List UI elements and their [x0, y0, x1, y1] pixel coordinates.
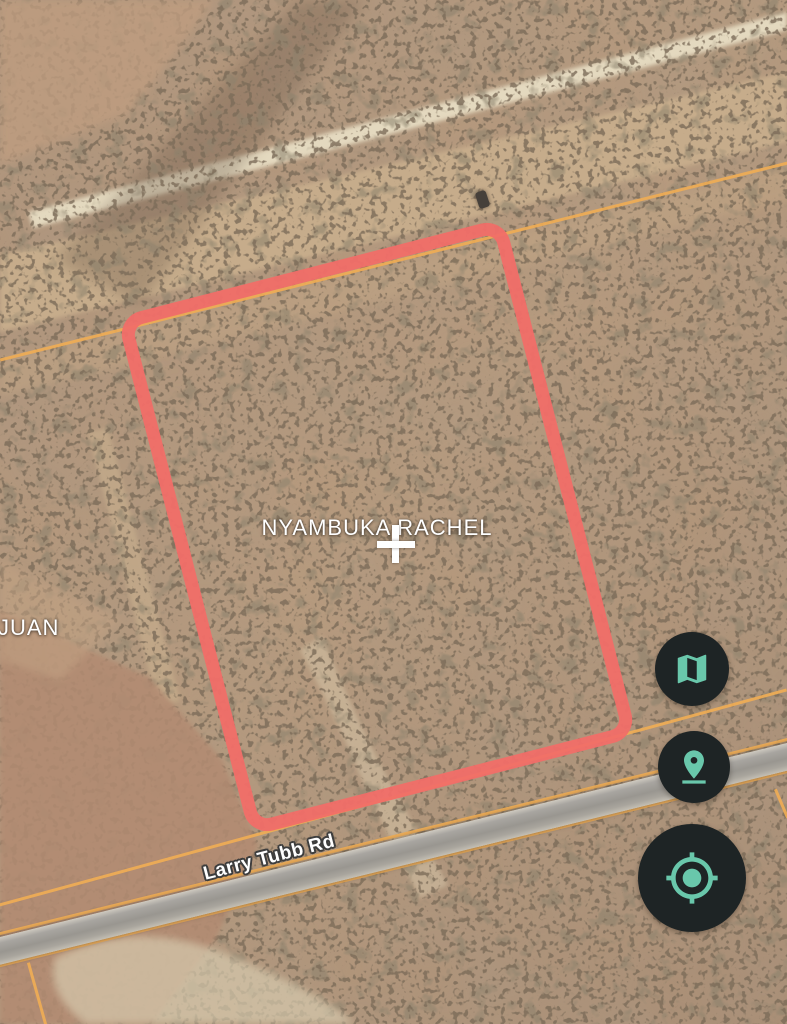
map-icon-glyph	[678, 655, 707, 684]
parcel-pin-button[interactable]	[658, 731, 730, 803]
neighbor-parcel-label: JUAN	[0, 615, 59, 641]
map-viewport[interactable]: NYAMBUKA RACHEL JUAN Larry Tubb Rd	[0, 0, 787, 1024]
map-icon	[673, 650, 711, 688]
my-location-icon-glyph	[666, 852, 717, 903]
map-type-button[interactable]	[655, 632, 729, 706]
my-location-icon	[664, 850, 720, 906]
pin-drop-icon	[674, 747, 714, 787]
parcel-center-marker-icon	[377, 541, 415, 548]
pin-drop-icon-glyph	[682, 750, 705, 783]
gps-locate-button[interactable]	[638, 824, 746, 932]
parcel-owner-label: NYAMBUKA RACHEL	[177, 515, 577, 541]
